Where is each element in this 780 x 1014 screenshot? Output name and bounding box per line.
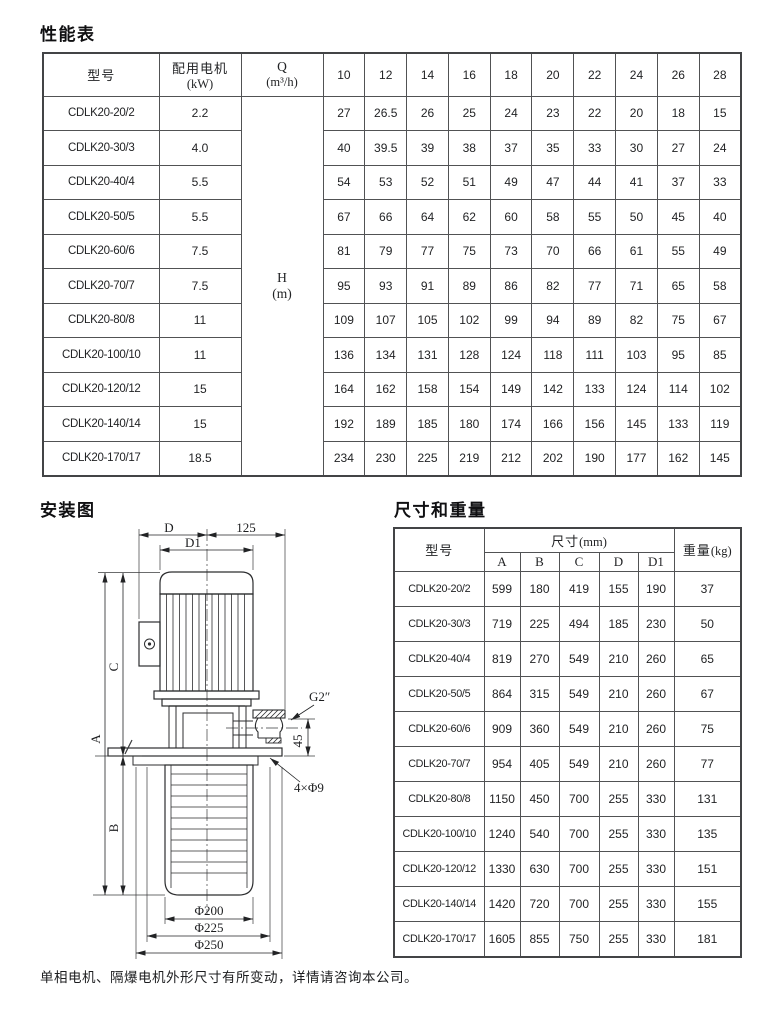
dim-value-cell: 185 [599,606,638,641]
dim-value-cell: 255 [599,852,638,887]
head-value-cell: 50 [616,200,658,235]
dim-value-cell: 255 [599,782,638,817]
footer-note: 单相电机、隔爆电机外形尺寸有所变动，详情请咨询本公司。 [40,966,418,986]
dim-value-cell: 210 [599,676,638,711]
dim-letter-header-cell: A [484,552,520,571]
head-value-cell: 64 [407,200,449,235]
head-value-cell: 156 [574,407,616,442]
dim-value-cell: 1330 [484,852,520,887]
head-value-cell: 75 [448,234,490,269]
head-value-cell: 37 [490,131,532,166]
model-cell: CDLK20-60/6 [394,711,484,746]
head-value-cell: 82 [532,269,574,304]
dim-label-a: A [88,734,103,744]
head-value-cell: 102 [448,303,490,338]
head-value-cell: 94 [532,303,574,338]
dim-letter-header-cell: D [599,552,638,571]
head-value-cell: 119 [699,407,741,442]
col-header-weight: 重量(kg) [674,528,741,571]
dim-value-cell: 954 [484,746,520,781]
dim-value-cell: 210 [599,746,638,781]
dimension-table: 型号 尺寸(mm) 重量(kg) ABCDD1 CDLK20-20/259918… [393,527,742,958]
model-cell: CDLK20-100/10 [43,338,159,373]
head-value-cell: 89 [574,303,616,338]
head-value-cell: 142 [532,372,574,407]
barrel-flange [133,756,258,765]
head-value-cell: 136 [323,338,365,373]
flow-header-cell: 26 [657,53,699,96]
head-value-cell: 149 [490,372,532,407]
head-value-cell: 212 [490,441,532,476]
dim-value-cell: 360 [520,711,559,746]
dimension-row: CDLK20-30/371922549418523050 [394,606,741,641]
head-value-cell: 23 [532,96,574,131]
head-value-cell: 39 [407,131,449,166]
head-value-cell: 234 [323,441,365,476]
head-value-cell: 54 [323,165,365,200]
head-value-cell: 230 [365,441,407,476]
dim-value-cell: 260 [638,641,674,676]
weight-cell: 37 [674,571,741,606]
performance-row: CDLK20-50/55.567666462605855504540 [43,200,741,235]
head-value-cell: 79 [365,234,407,269]
performance-section-title: 性能表 [40,20,96,45]
motor-body [160,594,253,691]
head-value-cell: 73 [490,234,532,269]
head-value-cell: 67 [323,200,365,235]
head-value-cell: 189 [365,407,407,442]
model-cell: CDLK20-20/2 [43,96,159,131]
model-cell: CDLK20-50/5 [394,676,484,711]
dim-label-d1: D1 [185,535,201,550]
weight-cell: 135 [674,817,741,852]
head-value-cell: 37 [657,165,699,200]
flow-header-cell: 28 [699,53,741,96]
model-cell: CDLK20-40/4 [394,641,484,676]
motor-kw-cell: 18.5 [159,441,241,476]
weight-cell: 151 [674,852,741,887]
head-value-cell: 133 [657,407,699,442]
datasheet-page: { "page": { "performance_title": "性能表", … [0,0,780,1014]
dim-label-b: B [106,823,121,832]
dim-value-cell: 549 [559,641,599,676]
head-value-cell: 62 [448,200,490,235]
head-value-cell: 86 [490,269,532,304]
dim-value-cell: 330 [638,817,674,852]
dim-value-cell: 855 [520,922,559,957]
dim-value-cell: 260 [638,676,674,711]
model-cell: CDLK20-20/2 [394,571,484,606]
head-value-cell: 124 [490,338,532,373]
head-value-cell: 77 [574,269,616,304]
performance-row: CDLK20-140/14151921891851801741661561451… [43,407,741,442]
dim-label-d: D [164,520,173,535]
motor-cap [160,572,253,594]
head-value-cell: 166 [532,407,574,442]
flow-header-cell: 12 [365,53,407,96]
dim-value-cell: 330 [638,922,674,957]
performance-header-row: 型号 配用电机 (kW) Q (m³/h) 101214161820222426… [43,53,741,96]
weight-cell: 155 [674,887,741,922]
dimension-table-body: CDLK20-20/259918041915519037CDLK20-30/37… [394,571,741,957]
dim-value-cell: 630 [520,852,559,887]
model-cell: CDLK20-80/8 [43,303,159,338]
head-value-cell: 15 [699,96,741,131]
dim-value-cell: 155 [599,571,638,606]
head-value-cell: 164 [323,372,365,407]
head-value-cell: 58 [699,269,741,304]
head-value-cell: 128 [448,338,490,373]
dim-value-cell: 260 [638,711,674,746]
performance-row: CDLK20-30/34.04039.53938373533302724 [43,131,741,166]
head-value-cell: 77 [407,234,449,269]
head-value-cell: 40 [699,200,741,235]
dim-value-cell: 864 [484,676,520,711]
dim-label-holes: 4×Φ9 [294,780,324,795]
dim-value-cell: 419 [559,571,599,606]
model-cell: CDLK20-40/4 [43,165,159,200]
dim-value-cell: 549 [559,676,599,711]
head-value-cell: 114 [657,372,699,407]
col-header-dims: 尺寸(mm) [484,528,674,552]
model-cell: CDLK20-50/5 [43,200,159,235]
head-value-cell: 55 [657,234,699,269]
performance-row: CDLK20-70/77.595939189868277716558 [43,269,741,304]
dimension-row: CDLK20-20/259918041915519037 [394,571,741,606]
dim-value-cell: 225 [520,606,559,641]
head-value-cell: 158 [407,372,449,407]
head-value-cell: 44 [574,165,616,200]
model-cell: CDLK20-60/6 [43,234,159,269]
col-header-model: 型号 [43,53,159,96]
dim-value-cell: 255 [599,817,638,852]
head-value-cell: 51 [448,165,490,200]
head-value-cell: 111 [574,338,616,373]
model-cell: CDLK20-80/8 [394,782,484,817]
dim-value-cell: 719 [484,606,520,641]
flow-header-cell: 18 [490,53,532,96]
dim-value-cell: 700 [559,887,599,922]
weight-cell: 131 [674,782,741,817]
col-header-motor: 配用电机 (kW) [159,53,241,96]
motor-label: 配用电机 [160,58,241,77]
head-value-cell: 49 [699,234,741,269]
flow-header-cell: 22 [574,53,616,96]
dimension-row: CDLK20-60/690936054921026075 [394,711,741,746]
dim-value-cell: 909 [484,711,520,746]
head-value-cell: 202 [532,441,574,476]
model-cell: CDLK20-30/3 [394,606,484,641]
model-cell: CDLK20-70/7 [43,269,159,304]
dim-value-cell: 700 [559,817,599,852]
head-value-cell: 192 [323,407,365,442]
dim-label-g2: G2″ [309,689,330,704]
head-value-cell: 124 [616,372,658,407]
motor-kw-cell: 2.2 [159,96,241,131]
model-cell: CDLK20-100/10 [394,817,484,852]
dimension-row: CDLK20-40/481927054921026065 [394,641,741,676]
head-value-cell: 53 [365,165,407,200]
head-value-cell: 225 [407,441,449,476]
motor-kw-cell: 5.5 [159,165,241,200]
head-value-cell: 133 [574,372,616,407]
head-value-cell: 58 [532,200,574,235]
performance-table: 型号 配用电机 (kW) Q (m³/h) 101214161820222426… [42,52,742,477]
barrel-stages [171,774,247,873]
head-value-cell: 66 [365,200,407,235]
head-value-cell: 162 [657,441,699,476]
head-value-cell: 27 [323,96,365,131]
dimension-row: CDLK20-50/586431554921026067 [394,676,741,711]
head-value-cell: 105 [407,303,449,338]
head-value-cell: 134 [365,338,407,373]
performance-row: CDLK20-170/1718.523423022521921220219017… [43,441,741,476]
performance-row: CDLK20-20/22.2H(m)2726.52625242322201815 [43,96,741,131]
dim-label-phi200: Φ200 [194,903,223,918]
performance-row: CDLK20-40/45.554535251494744413733 [43,165,741,200]
dim-value-cell: 819 [484,641,520,676]
head-value-cell: 49 [490,165,532,200]
dim-value-cell: 549 [559,711,599,746]
dim-label-phi250: Φ250 [194,937,223,952]
head-value-cell: 33 [699,165,741,200]
outlet-port [253,710,285,743]
head-value-cell: 35 [532,131,574,166]
head-value-cell: 89 [448,269,490,304]
dimension-row: CDLK20-140/141420720700255330155 [394,887,741,922]
dim-value-cell: 599 [484,571,520,606]
dim-label-125: 125 [236,520,256,535]
head-value-cell: 118 [532,338,574,373]
head-value-cell: 219 [448,441,490,476]
dimension-row: CDLK20-120/121330630700255330151 [394,852,741,887]
model-cell: CDLK20-120/12 [43,372,159,407]
flow-header-cell: 10 [323,53,365,96]
head-value-cell: 26.5 [365,96,407,131]
model-cell: CDLK20-70/7 [394,746,484,781]
dimension-row: CDLK20-80/81150450700255330131 [394,782,741,817]
head-value-cell: 40 [323,131,365,166]
dim-value-cell: 750 [559,922,599,957]
head-value-cell: 177 [616,441,658,476]
head-merged-cell: H(m) [241,96,323,476]
head-value-cell: 95 [323,269,365,304]
installation-diagram: D 125 D1 A C B G2″ 45 4×Φ9 Φ200 Φ225 Φ25… [30,515,390,975]
dim-value-cell: 210 [599,711,638,746]
flow-header-cell: 24 [616,53,658,96]
head-value-cell: 145 [616,407,658,442]
head-value-cell: 24 [490,96,532,131]
model-cell: CDLK20-120/12 [394,852,484,887]
head-value-cell: 185 [407,407,449,442]
tick-mark [125,740,132,754]
head-value-cell: 190 [574,441,616,476]
head-value-cell: 47 [532,165,574,200]
motor-ribs [167,594,245,691]
dim-value-cell: 549 [559,746,599,781]
head-value-cell: 45 [657,200,699,235]
dim-letter-header-cell: D1 [638,552,674,571]
dim-value-cell: 330 [638,782,674,817]
dimension-row: CDLK20-100/101240540700255330135 [394,817,741,852]
head-value-cell: 107 [365,303,407,338]
flow-header-cell: 16 [448,53,490,96]
diagram-centerlines [207,529,302,915]
motor-unit: (kW) [160,77,241,92]
dim-value-cell: 190 [638,571,674,606]
head-value-cell: 82 [616,303,658,338]
head-value-cell: 24 [699,131,741,166]
head-value-cell: 71 [616,269,658,304]
dim-value-cell: 230 [638,606,674,641]
head-value-cell: 131 [407,338,449,373]
dimensions-section-title: 尺寸和重量 [394,496,487,521]
pump-head-leg-left [169,706,176,748]
head-value-cell: 81 [323,234,365,269]
flow-q-label: Q [242,59,323,75]
motor-kw-cell: 4.0 [159,131,241,166]
dim-value-cell: 255 [599,887,638,922]
motor-flange [154,691,259,699]
dim-value-cell: 540 [520,817,559,852]
head-value-cell: 103 [616,338,658,373]
head-value-cell: 52 [407,165,449,200]
dim-label-c: C [106,663,121,672]
head-value-cell: 162 [365,372,407,407]
g2-leader [291,705,314,720]
performance-row: CDLK20-60/67.581797775737066615549 [43,234,741,269]
weight-cell: 75 [674,711,741,746]
head-value-cell: 70 [532,234,574,269]
dim-label-45: 45 [290,735,305,748]
col-header-model2: 型号 [394,528,484,571]
port-flange-hatch [255,710,285,718]
head-value-cell: 180 [448,407,490,442]
flow-q-unit: (m³/h) [242,75,323,90]
head-value-cell: 61 [616,234,658,269]
motor-kw-cell: 11 [159,338,241,373]
dim-value-cell: 1420 [484,887,520,922]
head-value-cell: 38 [448,131,490,166]
head-value-cell: 41 [616,165,658,200]
flow-header-cell: 20 [532,53,574,96]
weight-cell: 67 [674,676,741,711]
dim-value-cell: 180 [520,571,559,606]
col-header-flow: Q (m³/h) [241,53,323,96]
head-value-cell: 66 [574,234,616,269]
dim-value-cell: 270 [520,641,559,676]
dim-letter-header-cell: B [520,552,559,571]
head-value-cell: 95 [657,338,699,373]
weight-cell: 65 [674,641,741,676]
motor-kw-cell: 7.5 [159,234,241,269]
performance-table-body: CDLK20-20/22.2H(m)2726.52625242322201815… [43,96,741,476]
head-value-cell: 65 [657,269,699,304]
head-value-cell: 18 [657,96,699,131]
motor-kw-cell: 11 [159,303,241,338]
head-value-cell: 60 [490,200,532,235]
head-value-cell: 93 [365,269,407,304]
performance-row: CDLK20-100/10111361341311281241181111039… [43,338,741,373]
model-cell: CDLK20-170/17 [394,922,484,957]
performance-row: CDLK20-120/12151641621581541491421331241… [43,372,741,407]
head-value-cell: 33 [574,131,616,166]
flow-header-cell: 14 [407,53,449,96]
motor-kw-cell: 15 [159,372,241,407]
head-value-cell: 25 [448,96,490,131]
dim-label-phi225: Φ225 [194,920,223,935]
motor-kw-cell: 5.5 [159,200,241,235]
dimension-header-row-1: 型号 尺寸(mm) 重量(kg) [394,528,741,552]
dim-value-cell: 700 [559,782,599,817]
head-value-cell: 55 [574,200,616,235]
dim-value-cell: 1150 [484,782,520,817]
head-value-cell: 145 [699,441,741,476]
pump-head-leg-right [239,706,246,748]
dim-letter-header-cell: C [559,552,599,571]
head-value-cell: 75 [657,303,699,338]
dim-value-cell: 255 [599,922,638,957]
dim-value-cell: 720 [520,887,559,922]
weight-cell: 77 [674,746,741,781]
dim-value-cell: 405 [520,746,559,781]
head-value-cell: 174 [490,407,532,442]
head-value-cell: 39.5 [365,131,407,166]
model-cell: CDLK20-170/17 [43,441,159,476]
dim-value-cell: 260 [638,746,674,781]
head-value-cell: 102 [699,372,741,407]
performance-row: CDLK20-80/811109107105102999489827567 [43,303,741,338]
motor-kw-cell: 7.5 [159,269,241,304]
head-value-cell: 109 [323,303,365,338]
pump-outline [108,572,282,895]
dim-value-cell: 330 [638,852,674,887]
head-value-cell: 91 [407,269,449,304]
mounting-plate [108,748,282,756]
dimension-row: CDLK20-70/795440554921026077 [394,746,741,781]
dim-value-cell: 494 [559,606,599,641]
head-value-cell: 22 [574,96,616,131]
head-value-cell: 30 [616,131,658,166]
head-value-cell: 27 [657,131,699,166]
pump-head [183,713,233,748]
dim-value-cell: 1605 [484,922,520,957]
model-cell: CDLK20-140/14 [43,407,159,442]
holes-leader [270,758,300,782]
model-cell: CDLK20-140/14 [394,887,484,922]
dimension-row: CDLK20-170/171605855750255330181 [394,922,741,957]
weight-cell: 50 [674,606,741,641]
dim-value-cell: 315 [520,676,559,711]
dim-value-cell: 450 [520,782,559,817]
dimension-lines [105,535,314,953]
head-value-cell: 99 [490,303,532,338]
head-value-cell: 26 [407,96,449,131]
weight-cell: 181 [674,922,741,957]
dim-value-cell: 210 [599,641,638,676]
model-cell: CDLK20-30/3 [43,131,159,166]
head-value-cell: 154 [448,372,490,407]
head-value-cell: 85 [699,338,741,373]
dim-value-cell: 1240 [484,817,520,852]
dim-value-cell: 330 [638,887,674,922]
head-value-cell: 20 [616,96,658,131]
dim-value-cell: 700 [559,852,599,887]
motor-kw-cell: 15 [159,407,241,442]
pump-barrel [165,765,253,895]
head-value-cell: 67 [699,303,741,338]
